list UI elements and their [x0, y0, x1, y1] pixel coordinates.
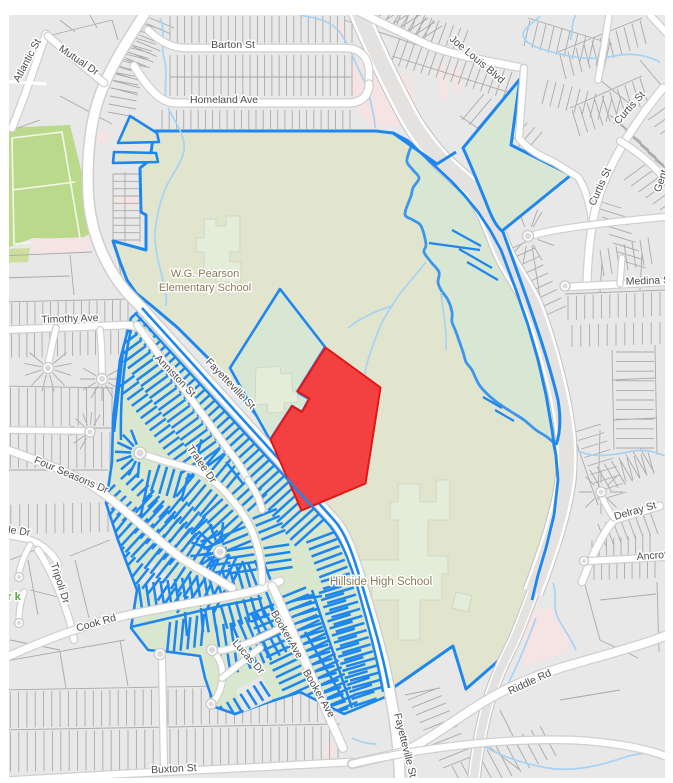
- svg-text:W.G. Pearson: W.G. Pearson: [171, 268, 239, 280]
- svg-text:Barton St: Barton St: [211, 39, 255, 51]
- svg-text:Elementary School: Elementary School: [159, 282, 251, 294]
- svg-text:Homeland Ave: Homeland Ave: [190, 94, 258, 106]
- svg-text:Buxton St: Buxton St: [151, 762, 197, 776]
- svg-text:r k: r k: [7, 591, 21, 603]
- svg-text:Hillside High School: Hillside High School: [330, 576, 432, 588]
- svg-text:Ancrof: Ancrof: [636, 549, 667, 563]
- svg-text:Timothy Ave: Timothy Ave: [41, 312, 99, 326]
- svg-text:Medina S: Medina S: [626, 274, 671, 288]
